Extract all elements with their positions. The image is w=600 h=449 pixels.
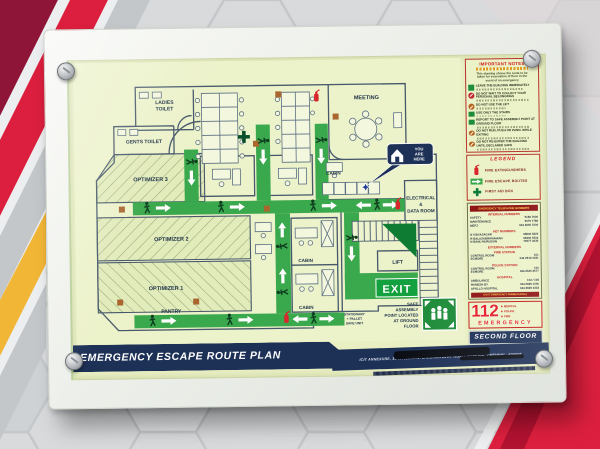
sign-title: EMERGENCY ESCAPE ROUTE PLAN (73, 341, 365, 372)
acrylic-board: EXIT YOU ARE HERE (43, 22, 566, 409)
room-label-gents: GENTS TOILET (126, 139, 162, 146)
assembly-point-icon (422, 298, 456, 330)
room-label-electrical: ELECTRICAL (406, 195, 435, 200)
note-item: DO NOT RE-ENTER THE BUILDING UNTIL DECLA… (469, 140, 537, 150)
assembly-icon (469, 119, 475, 125)
note-item: DO NOT USE THE LIFT (468, 103, 536, 110)
svg-text:DATA ROOM: DATA ROOM (407, 208, 435, 213)
info-panel: IMPORTANT NOTES This drawing shows the r… (465, 58, 543, 345)
note-item: LEAVE THE BUILDING IMMEDIATELY (468, 84, 536, 91)
escape-route-icon (470, 178, 482, 184)
emergency-number: 112 (471, 303, 499, 320)
title-band: EMERGENCY ESCAPE ROUTE PLAN (73, 341, 365, 372)
floor-plan: EXIT YOU ARE HERE (73, 58, 465, 345)
room-label-optimizer2: OPTIMIZER 2 (154, 237, 189, 243)
escape-plan-sign: EXIT YOU ARE HERE (67, 54, 550, 381)
no-lift-icon (468, 104, 474, 110)
room-label-cabin: CABIN (326, 170, 341, 175)
legend-title: LEGEND (469, 156, 537, 162)
meeting-table (355, 118, 377, 140)
exit-man-icon (468, 85, 474, 91)
phone-row: EGMORE044 2819 3021 (471, 257, 539, 262)
legend-box: LEGEND FIRE EXTINGUISHERS FIRE ESCAPE RO… (466, 153, 541, 200)
notes-intro: This drawing shows the route to betaken … (468, 71, 536, 83)
no-reentry-icon (469, 141, 475, 147)
room-label-meeting: MEETING (354, 95, 379, 101)
exit-label: EXIT (382, 284, 411, 296)
stairs-icon (469, 112, 475, 118)
emergency-112-box: 112 MEDICAL POLICE FIRE EMERGENCY (468, 301, 542, 329)
no-running-icon (469, 130, 475, 136)
standoff-bolt (535, 350, 553, 368)
no-belongings-icon (468, 93, 474, 99)
room-label-optimizer1: OPTIMIZER 1 (149, 286, 184, 292)
phones-title: EMERGENCY TELEPHONE NUMBERS (470, 205, 538, 212)
room-label-pantry: PANTRY (161, 309, 182, 315)
note-item: DO NOT WAIT TO COLLECT YOUR PERSONAL BEL… (468, 92, 536, 102)
legend-row: FIRE EXTINGUISHERS (470, 164, 536, 176)
svg-text:ASSEMBLY: ASSEMBLY (395, 307, 418, 312)
emergency-services: MEDICAL POLICE FIRE (501, 304, 517, 317)
svg-text:CABIN: CABIN (298, 258, 313, 263)
emergency-label: EMERGENCY (471, 319, 539, 326)
photo-of-escape-plan-board: { "sign": { "title": "EMERGENCY ESCAPE R… (0, 0, 600, 449)
room-label-lift: LIFT (392, 260, 403, 266)
svg-text:SAFE UNIT: SAFE UNIT (346, 321, 363, 325)
room-label-optimizer3: OPTIMIZER 3 (133, 177, 168, 183)
important-notes-box: IMPORTANT NOTES This drawing shows the r… (465, 58, 540, 153)
svg-text:CABIN: CABIN (299, 305, 314, 310)
svg-text:HERE: HERE (414, 156, 426, 161)
legend-row: FIRE ESCAPE ROUTES (470, 178, 536, 185)
svg-text:TOILET: TOILET (156, 106, 174, 112)
svg-text:FLOOR: FLOOR (404, 323, 419, 328)
phone-row: EGMORE044 2345 2677 (471, 270, 539, 275)
assembly-note: SAFE (407, 301, 418, 306)
first-aid-icon (471, 187, 483, 196)
phone-row: N BANU MURUGAN73977 4036 (470, 240, 538, 245)
legend-row: FIRST AID BOX (471, 186, 537, 196)
exit-sign: EXIT (376, 278, 418, 297)
phone-row: APOLLO HOSPITAL044 2829 3333 (471, 286, 539, 291)
note-item: USE ONLY THE STAIRS (469, 110, 537, 117)
govt-emergency-bar: GOVT EMERGENCY NUMBER (DIAL) (471, 292, 539, 298)
note-item: REPORT TO SAFE ASSEMBLY POINT AT GROUND … (469, 118, 537, 128)
phone-numbers-box: EMERGENCY TELEPHONE NUMBERS INTERNAL NUM… (467, 202, 542, 300)
note-item: DO NOT RUN, PUSH OR PANIC WHILE EXITING (469, 129, 537, 139)
fire-extinguisher-icon (470, 165, 482, 176)
room-label-ladies: LADIES (155, 100, 174, 106)
